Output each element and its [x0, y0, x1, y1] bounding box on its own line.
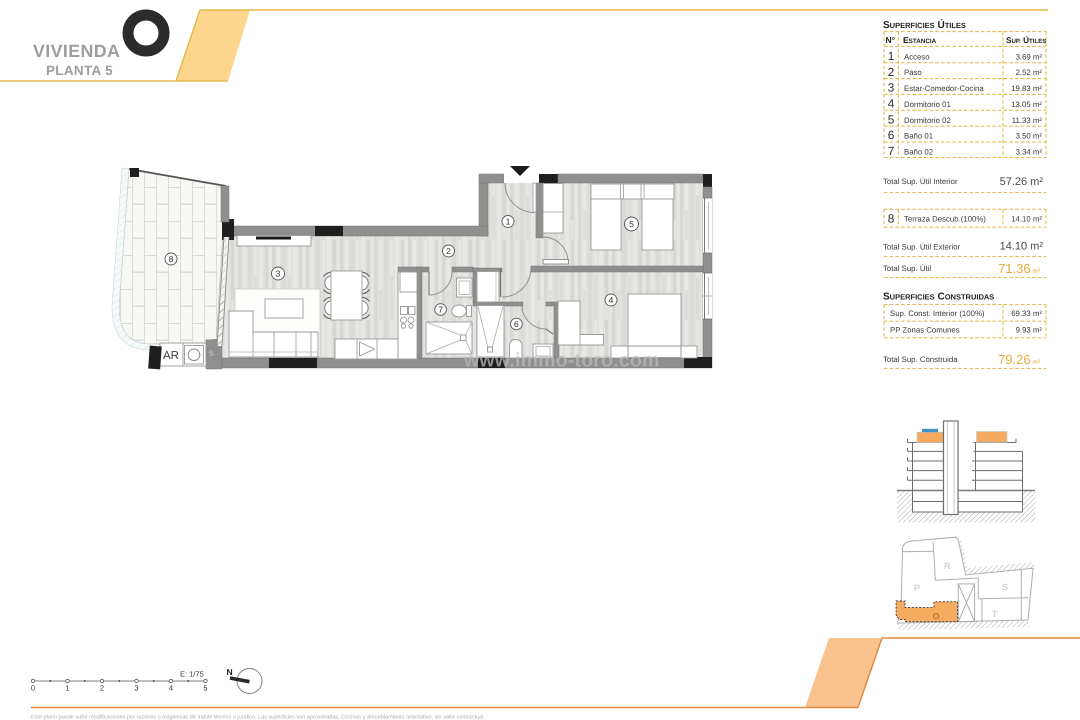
svg-text:Terraza Descub.(100%): Terraza Descub.(100%) [904, 215, 986, 224]
svg-text:5: 5 [629, 219, 634, 229]
svg-text:Total Sup. Útil: Total Sup. Útil [883, 264, 931, 273]
svg-text:7: 7 [438, 305, 443, 315]
svg-text:3.34 m²: 3.34 m² [1016, 148, 1043, 157]
svg-text:PP Zonas Comunes: PP Zonas Comunes [890, 325, 960, 334]
svg-text:R: R [944, 561, 951, 571]
svg-text:Acceso: Acceso [904, 52, 930, 61]
svg-text:www.immo-toro.com: www.immo-toro.com [463, 350, 660, 372]
svg-text:2.52 m²: 2.52 m² [1016, 68, 1043, 77]
svg-text:Baño 02: Baño 02 [904, 148, 933, 157]
svg-text:1: 1 [888, 49, 895, 63]
svg-text:3: 3 [888, 81, 895, 95]
svg-text:8: 8 [169, 254, 174, 264]
svg-text:1: 1 [65, 684, 69, 693]
svg-text:Total Sup. Útil Exterior: Total Sup. Útil Exterior [883, 243, 961, 252]
svg-text:19.83 m²: 19.83 m² [1011, 84, 1042, 93]
svg-text:5: 5 [203, 684, 207, 693]
svg-text:SUPERFICIES CONSTRUIDAS: SUPERFICIES CONSTRUIDAS [883, 292, 994, 303]
svg-text:11.33 m²: 11.33 m² [1012, 116, 1043, 125]
svg-text:9.93 m²: 9.93 m² [1016, 325, 1043, 334]
svg-text:4: 4 [609, 295, 614, 305]
svg-text:Paso: Paso [904, 68, 922, 77]
svg-text:5: 5 [888, 112, 895, 126]
svg-text:13.05 m²: 13.05 m² [1011, 100, 1042, 109]
svg-text:PLANTA 5: PLANTA 5 [46, 63, 113, 78]
svg-text:7: 7 [888, 144, 895, 158]
svg-text:N: N [227, 667, 233, 677]
svg-text:P: P [914, 583, 920, 593]
svg-text:3: 3 [134, 684, 138, 693]
svg-text:8: 8 [888, 212, 895, 226]
svg-text:Baño 01: Baño 01 [904, 132, 933, 141]
svg-text:T: T [992, 609, 998, 619]
svg-text:Dormitorio 01: Dormitorio 01 [904, 100, 951, 109]
svg-text:57.26 m²: 57.26 m² [1000, 176, 1044, 188]
svg-text:S: S [1002, 582, 1008, 592]
svg-text:4: 4 [888, 97, 895, 111]
svg-text:N°: N° [886, 35, 896, 45]
svg-text:3.50 m²: 3.50 m² [1016, 132, 1043, 141]
svg-text:3: 3 [276, 269, 281, 279]
svg-text:4: 4 [169, 684, 173, 693]
svg-text:6: 6 [888, 128, 895, 142]
svg-text:0: 0 [31, 684, 35, 693]
svg-text:2: 2 [100, 684, 104, 693]
svg-text:SUPERFICIES ÚTILES: SUPERFICIES ÚTILES [883, 19, 966, 31]
svg-text:2: 2 [446, 246, 451, 256]
svg-text:Sup. Const. Interior (100%): Sup. Const. Interior (100%) [890, 309, 985, 318]
svg-text:Total Sup. Construida: Total Sup. Construida [883, 355, 958, 364]
svg-text:2: 2 [888, 65, 895, 79]
svg-text:VIVIENDA: VIVIENDA [33, 41, 120, 61]
svg-text:14.10 m²: 14.10 m² [1000, 241, 1044, 253]
svg-text:Estar-Comedor-Cocina: Estar-Comedor-Cocina [904, 84, 984, 93]
svg-text:Este plano puede sufrir modifi: Este plano puede sufrir modificaciones p… [31, 714, 485, 720]
svg-text:6: 6 [514, 319, 519, 329]
svg-text:14.10 m²: 14.10 m² [1011, 215, 1042, 224]
svg-text:1: 1 [506, 217, 511, 227]
svg-text:69.33 m²: 69.33 m² [1011, 309, 1042, 318]
svg-text:Dormitorio 02: Dormitorio 02 [904, 116, 951, 125]
svg-text:3.69 m²: 3.69 m² [1016, 52, 1043, 61]
svg-text:E: 1/75: E: 1/75 [180, 670, 204, 679]
svg-text:AR: AR [163, 350, 179, 362]
svg-text:Total Sup. Útil Interior: Total Sup. Útil Interior [883, 177, 958, 186]
